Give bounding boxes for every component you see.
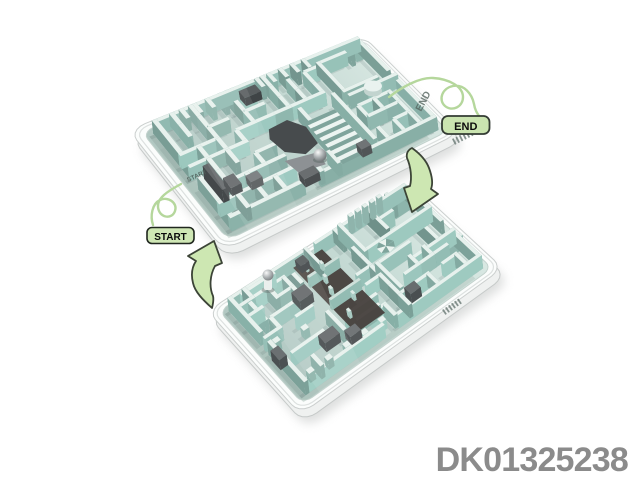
svg-text:DK01325238: DK01325238	[436, 441, 628, 479]
svg-text:END: END	[454, 121, 477, 133]
svg-text:START: START	[154, 232, 187, 243]
